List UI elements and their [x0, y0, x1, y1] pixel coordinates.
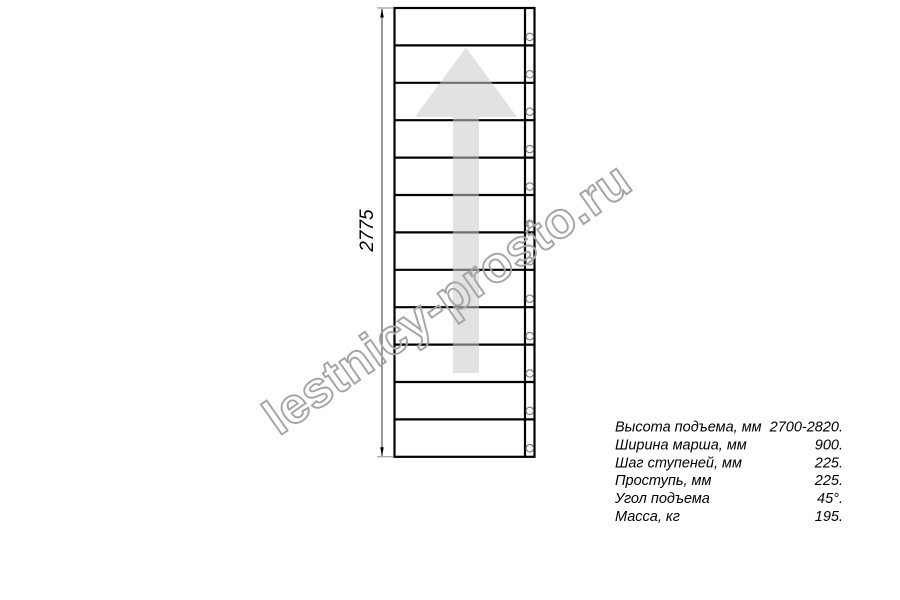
svg-text:45°.: 45°. — [817, 491, 843, 507]
svg-text:225.: 225. — [814, 455, 843, 471]
svg-text:Шаг ступеней, мм: Шаг ступеней, мм — [615, 455, 742, 471]
svg-text:2700-2820.: 2700-2820. — [769, 420, 843, 436]
svg-text:Высота подъема, мм: Высота подъема, мм — [615, 420, 762, 436]
svg-text:Проступь, мм: Проступь, мм — [615, 473, 711, 489]
svg-text:225.: 225. — [814, 473, 843, 489]
svg-text:2775: 2775 — [357, 209, 378, 253]
svg-text:900.: 900. — [815, 437, 843, 453]
svg-text:195.: 195. — [815, 509, 843, 525]
svg-text:Ширина марша, мм: Ширина марша, мм — [615, 437, 747, 453]
svg-text:Масса, кг: Масса, кг — [615, 509, 680, 525]
svg-text:Угол подъема: Угол подъема — [614, 491, 710, 507]
